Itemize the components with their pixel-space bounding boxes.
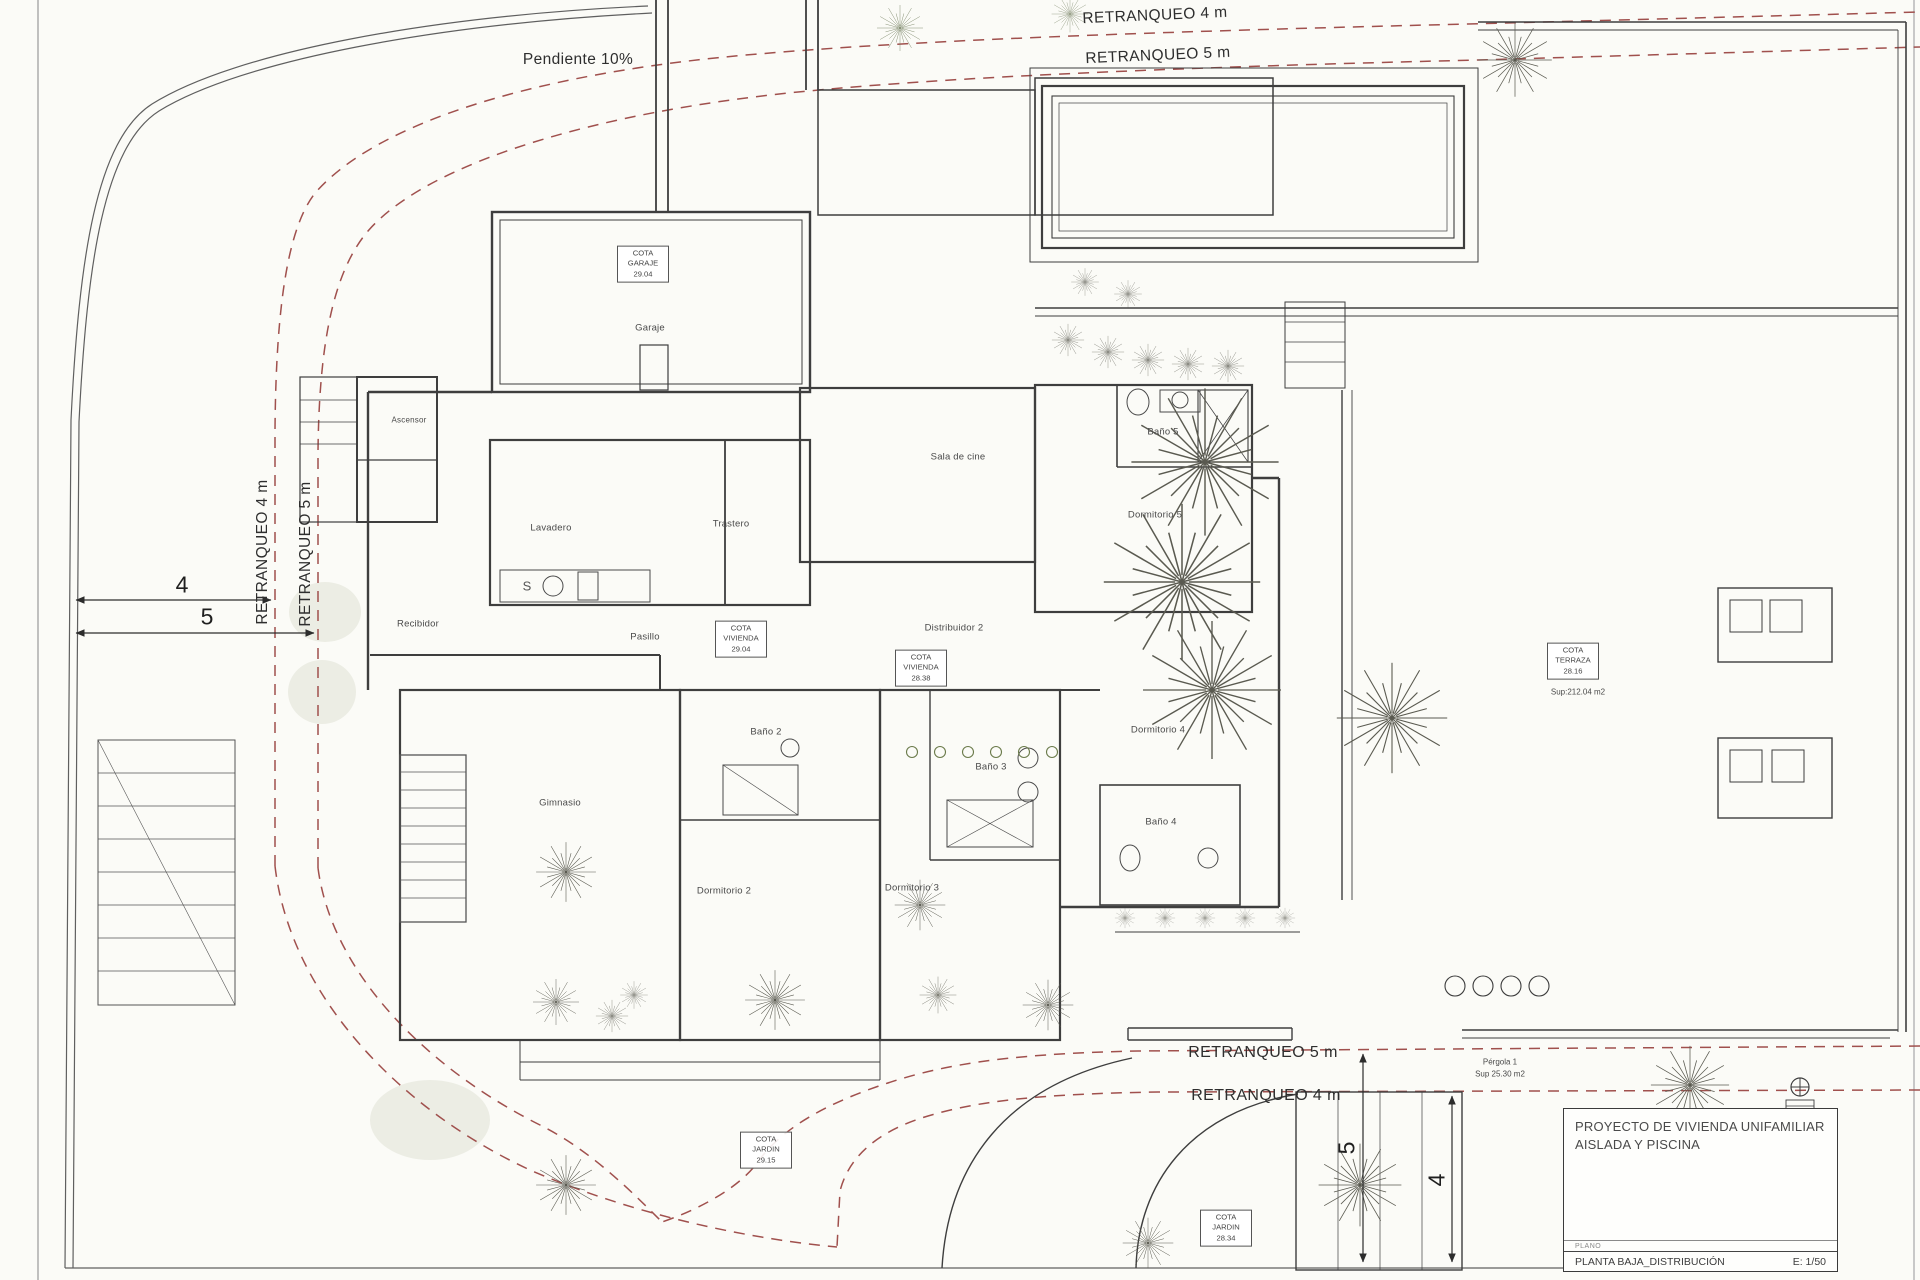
cota-box-jardin-1: COTA JARDIN 29.15	[740, 1132, 792, 1169]
room-label-bano-3: Baño 3	[975, 762, 1006, 773]
room-label-garaje: Garaje	[635, 323, 665, 334]
cota-box-garaje: COTA GARAJE 29.04	[617, 246, 669, 283]
cota-area: JARDIN	[746, 1145, 786, 1155]
plano-caption: PLANO	[1564, 1240, 1837, 1251]
room-label-recibidor: Recibidor	[397, 619, 439, 630]
cota-area: VIVIENDA	[721, 634, 761, 644]
cota-title: COTA	[901, 653, 941, 663]
sheet-scale: E: 1/50	[1793, 1256, 1826, 1268]
cota-title: COTA	[721, 624, 761, 634]
cota-level: 28.34	[1206, 1233, 1246, 1243]
cota-box-vivienda-2: COTA VIVIENDA 28.38	[895, 650, 947, 687]
cota-level: 29.15	[746, 1155, 786, 1165]
cota-level: 29.04	[721, 644, 761, 654]
cota-box-terraza: COTA TERRAZA 28.16	[1547, 643, 1599, 680]
room-label-distribuidor-2: Distribuidor 2	[925, 623, 984, 634]
room-label-sala-de-cine: Sala de cine	[931, 452, 986, 463]
title-block: PROYECTO DE VIVIENDA UNIFAMILIAR AISLADA…	[1563, 1108, 1838, 1272]
project-title-line2: AISLADA Y PISCINA	[1575, 1136, 1826, 1154]
pergola-name: Pérgola 1	[1475, 1056, 1525, 1068]
pool-and-terrace	[1030, 22, 1906, 1038]
dim-number-left-5: 5	[201, 604, 214, 631]
room-label-dormitorio-4: Dormitorio 4	[1131, 725, 1185, 736]
room-label-bano-2: Baño 2	[750, 727, 781, 738]
cota-level: 29.04	[623, 269, 663, 279]
setback-label-left-5m: RETRANQUEO 5 m	[297, 481, 315, 626]
floorplan-sheet: Pendiente 10% RETRANQUEO 4 m RETRANQUEO …	[0, 0, 1920, 1280]
floorplan-linework	[0, 0, 1920, 1280]
setback-label-bottom-5m: RETRANQUEO 5 m	[1188, 1044, 1338, 1062]
dim-number-bottom-5: 5	[1334, 1142, 1361, 1155]
sink-letter: S	[523, 579, 532, 594]
room-label-trastero: Trastero	[713, 519, 750, 530]
cota-title: COTA	[1553, 646, 1593, 656]
setback-label-bottom-4m: RETRANQUEO 4 m	[1191, 1087, 1341, 1105]
room-label-dormitorio-5: Dormitorio 5	[1128, 510, 1182, 521]
room-label-dormitorio-3: Dormitorio 3	[885, 883, 939, 894]
room-label-bano-4: Baño 4	[1145, 817, 1176, 828]
slope-label: Pendiente 10%	[523, 51, 633, 69]
room-label-bano-5: Baño 5	[1147, 427, 1178, 438]
dim-number-bottom-4: 4	[1424, 1174, 1451, 1187]
cota-level: 28.16	[1553, 666, 1593, 676]
dim-number-left-4: 4	[176, 572, 189, 599]
vegetation	[533, 0, 1729, 1268]
cota-title: COTA	[746, 1135, 786, 1145]
pergola-label: Pérgola 1 Sup 25.30 m2	[1475, 1056, 1525, 1079]
cota-area: JARDIN	[1206, 1223, 1246, 1233]
room-label-gimnasio: Gimnasio	[539, 798, 581, 809]
cota-area: VIVIENDA	[901, 663, 941, 673]
room-label-pasillo: Pasillo	[630, 632, 659, 643]
cota-box-jardin-2: COTA JARDIN 28.34	[1200, 1210, 1252, 1247]
room-label-dormitorio-2: Dormitorio 2	[697, 886, 751, 897]
plumbing-fixtures	[500, 389, 1218, 871]
cota-box-vivienda-1: COTA VIVIENDA 29.04	[715, 621, 767, 658]
title-block-footer: PLANTA BAJA_DISTRIBUCIÓN E: 1/50	[1564, 1251, 1837, 1271]
stairs	[98, 740, 466, 1005]
project-title-line1: PROYECTO DE VIVIENDA UNIFAMILIAR	[1575, 1118, 1826, 1136]
sheet-title: PLANTA BAJA_DISTRIBUCIÓN	[1575, 1256, 1725, 1268]
project-title: PROYECTO DE VIVIENDA UNIFAMILIAR AISLADA…	[1564, 1109, 1837, 1240]
building-walls	[300, 0, 1300, 1080]
cota-area: TERRAZA	[1553, 656, 1593, 666]
setback-label-left-4m: RETRANQUEO 4 m	[254, 479, 272, 624]
room-label-ascensor: Ascensor	[392, 416, 427, 425]
cota-level: 28.38	[901, 673, 941, 683]
pergola-surface: Sup 25.30 m2	[1475, 1068, 1525, 1080]
cota-area: GARAJE	[623, 259, 663, 269]
room-label-lavadero: Lavadero	[530, 523, 571, 534]
cota-title: COTA	[623, 249, 663, 259]
cota-title: COTA	[1206, 1213, 1246, 1223]
terraza-sup-label: Sup:212.04 m2	[1551, 688, 1605, 697]
